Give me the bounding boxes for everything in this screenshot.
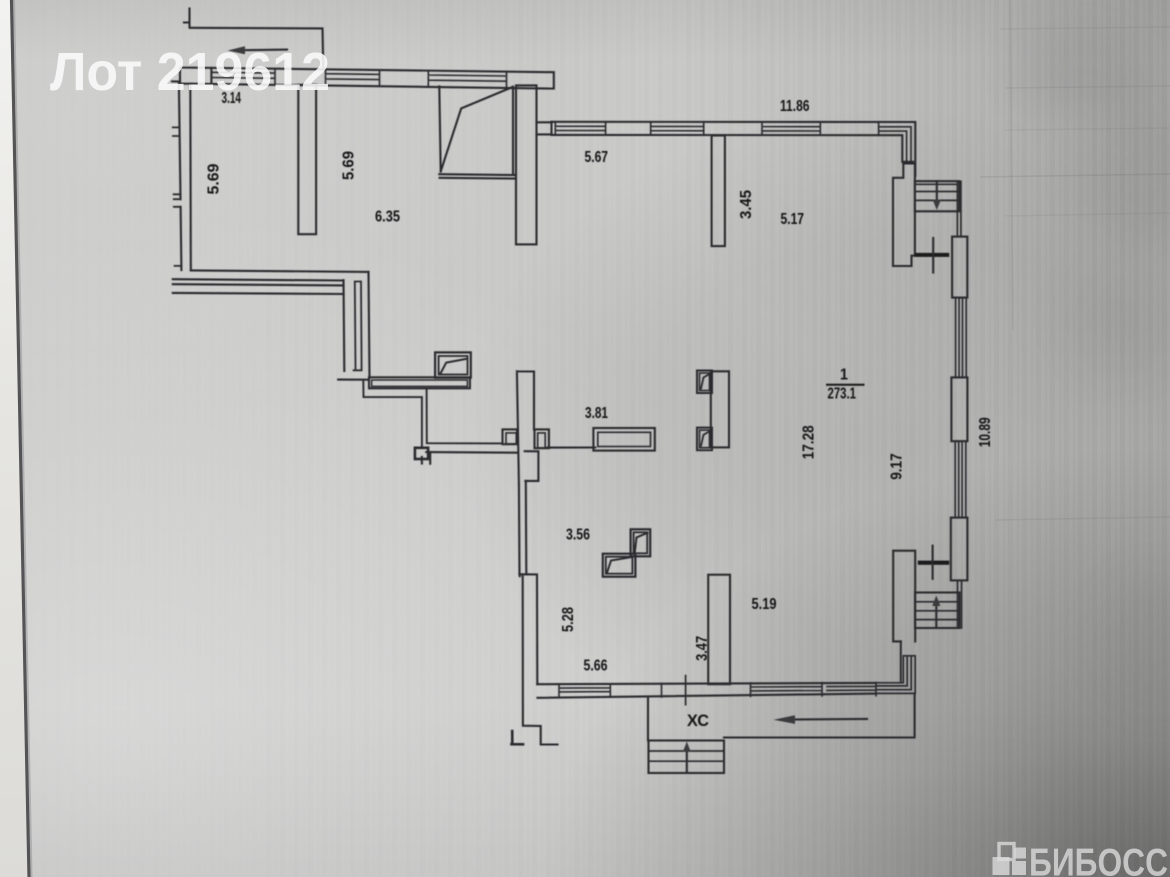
- svg-text:17.28: 17.28: [801, 425, 818, 459]
- svg-text:11.86: 11.86: [780, 98, 810, 115]
- svg-text:5.67: 5.67: [585, 149, 609, 166]
- svg-text:10.89: 10.89: [977, 417, 994, 447]
- svg-text:6.35: 6.35: [375, 209, 400, 226]
- svg-text:3.56: 3.56: [566, 527, 590, 544]
- svg-text:9.17: 9.17: [889, 453, 906, 480]
- svg-text:5.69: 5.69: [341, 151, 358, 180]
- svg-text:273.1: 273.1: [828, 386, 857, 403]
- svg-text:3.81: 3.81: [585, 405, 608, 422]
- svg-text:5.28: 5.28: [560, 607, 577, 632]
- svg-text:Лот 219612: Лот 219612: [50, 42, 330, 102]
- svg-text:БИБОСС: БИБОСС: [1029, 842, 1168, 877]
- svg-text:1: 1: [840, 367, 848, 384]
- svg-text:5.19: 5.19: [752, 596, 777, 613]
- svg-text:3.47: 3.47: [694, 636, 711, 661]
- svg-text:5.69: 5.69: [206, 163, 223, 194]
- svg-text:5.17: 5.17: [781, 211, 805, 228]
- svg-text:5.66: 5.66: [584, 658, 608, 675]
- svg-text:ХС: ХС: [687, 712, 709, 730]
- svg-text:3.45: 3.45: [738, 190, 755, 219]
